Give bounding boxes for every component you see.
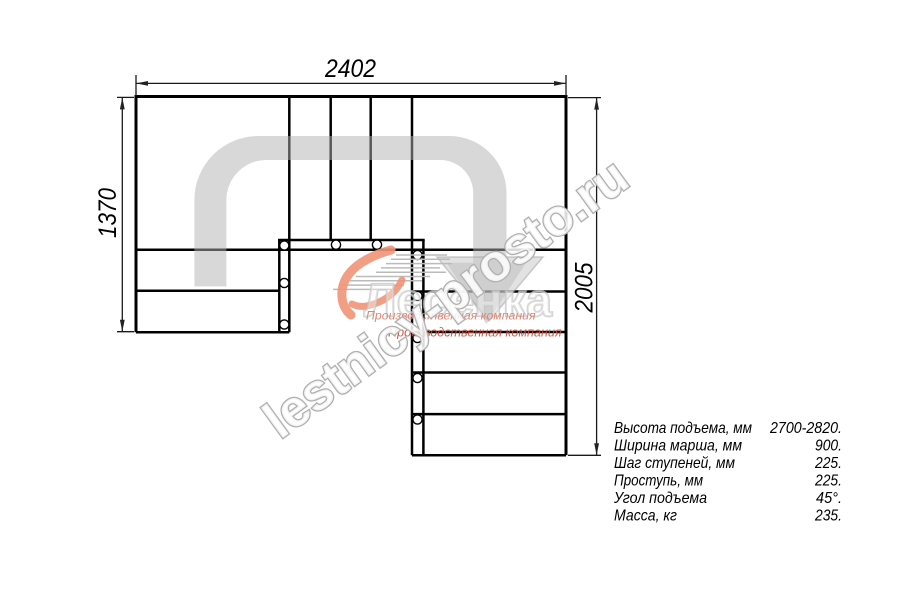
svg-text:225.: 225. <box>814 473 842 490</box>
svg-text:Масса, кг: Масса, кг <box>614 508 677 525</box>
svg-text:Проступь, мм: Проступь, мм <box>614 473 703 490</box>
svg-text:235.: 235. <box>814 508 842 525</box>
svg-text:2005: 2005 <box>571 262 599 313</box>
svg-text:225.: 225. <box>814 455 842 472</box>
svg-text:2402: 2402 <box>324 55 376 83</box>
svg-text:45°.: 45°. <box>816 490 842 507</box>
svg-text:900.: 900. <box>815 438 842 455</box>
svg-text:2700-2820.: 2700-2820. <box>769 420 842 437</box>
svg-text:1370: 1370 <box>94 188 122 238</box>
svg-text:Высота подъема, мм: Высота подъема, мм <box>614 420 752 437</box>
svg-text:Угол подъема: Угол подъема <box>613 490 707 507</box>
svg-text:Шаг ступеней, мм: Шаг ступеней, мм <box>614 455 735 472</box>
svg-text:Ширина марша, мм: Ширина марша, мм <box>614 438 742 455</box>
